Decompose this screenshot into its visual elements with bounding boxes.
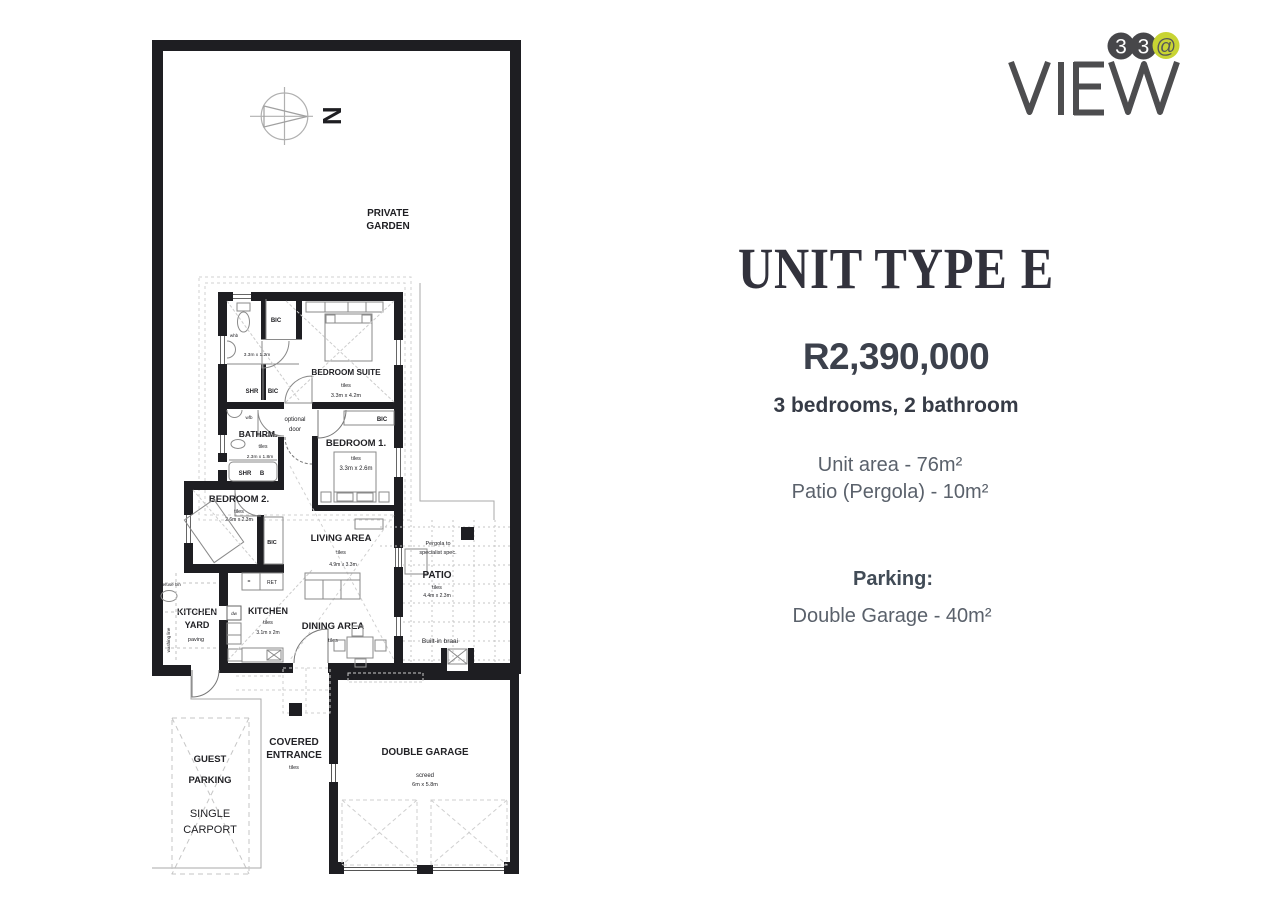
svg-text:GARDEN: GARDEN (366, 221, 409, 232)
svg-text:3.1m x 2m: 3.1m x 2m (256, 630, 279, 636)
svg-text:BEDROOM 1.: BEDROOM 1. (326, 438, 386, 449)
svg-text:3.3m x 4.2m: 3.3m x 4.2m (331, 393, 362, 399)
svg-text:SHR: SHR (239, 471, 252, 477)
svg-text:ENTRANCE: ENTRANCE (266, 750, 322, 761)
svg-text:optional: optional (284, 417, 305, 423)
svg-text:YARD: YARD (185, 620, 210, 630)
svg-text:LIVING AREA: LIVING AREA (311, 533, 372, 544)
svg-text:4.4m x 2.3m: 4.4m x 2.3m (423, 593, 451, 599)
svg-text:SINGLE: SINGLE (190, 808, 230, 820)
svg-text:dw: dw (231, 611, 238, 616)
svg-text:3: 3 (1115, 36, 1127, 59)
svg-text:Pergola to: Pergola to (425, 541, 450, 547)
svg-text:4.9m x 3.3m: 4.9m x 3.3m (329, 562, 357, 568)
svg-text:3.3m x 2.6m: 3.3m x 2.6m (339, 466, 372, 472)
svg-text:6m x 5.8m: 6m x 5.8m (412, 782, 438, 788)
svg-text:tiles: tiles (263, 620, 273, 626)
svg-text:specialist spec.: specialist spec. (419, 550, 457, 556)
svg-text:CARPORT: CARPORT (183, 824, 237, 836)
svg-text:BEDROOM 2.: BEDROOM 2. (209, 494, 269, 505)
svg-text:BATHRM.: BATHRM. (239, 429, 278, 439)
svg-text:door: door (289, 427, 301, 433)
svg-text:BIC: BIC (267, 540, 277, 546)
svg-text:3.3m x 1.2m: 3.3m x 1.2m (244, 352, 270, 358)
svg-text:tiles: tiles (336, 550, 346, 556)
svg-text:whb: whb (230, 333, 239, 338)
svg-text:N: N (317, 106, 347, 125)
svg-text:BIC: BIC (271, 318, 282, 324)
svg-text:screed: screed (416, 773, 434, 779)
svg-text:@: @ (1156, 36, 1176, 58)
svg-text:DOUBLE GARAGE: DOUBLE GARAGE (381, 747, 469, 758)
svg-text:PRIVATE: PRIVATE (367, 208, 409, 219)
svg-text:COVERED: COVERED (269, 737, 318, 748)
svg-text:=: = (248, 579, 251, 585)
svg-text:tiles: tiles (351, 456, 361, 462)
svg-text:tiles: tiles (432, 585, 442, 591)
svg-text:wfb: wfb (245, 415, 253, 420)
svg-text:PATIO: PATIO (422, 570, 451, 581)
svg-text:BIC: BIC (268, 389, 279, 395)
svg-text:RET: RET (267, 580, 277, 586)
svg-text:BIC: BIC (377, 417, 388, 423)
svg-text:fire wall: fire wall (353, 676, 372, 682)
svg-text:tiles: tiles (328, 638, 338, 644)
svg-text:KITCHEN: KITCHEN (248, 606, 288, 616)
svg-text:tiles: tiles (289, 765, 299, 771)
svg-text:tiles: tiles (259, 444, 268, 450)
svg-text:SHR: SHR (246, 389, 259, 395)
svg-text:paving: paving (188, 637, 204, 643)
svg-text:PARKING: PARKING (188, 775, 231, 786)
svg-text:tiles: tiles (234, 509, 244, 515)
svg-text:tiles: tiles (341, 383, 351, 389)
svg-text:BEDROOM SUITE: BEDROOM SUITE (311, 368, 381, 377)
svg-text:2.3m x 1.8m: 2.3m x 1.8m (247, 454, 273, 460)
svg-text:3: 3 (1138, 36, 1150, 59)
svg-text:washing line: washing line (166, 627, 171, 652)
svg-text:B: B (260, 471, 265, 477)
svg-text:GUEST: GUEST (194, 754, 227, 765)
svg-text:Built-in braai: Built-in braai (422, 638, 458, 645)
